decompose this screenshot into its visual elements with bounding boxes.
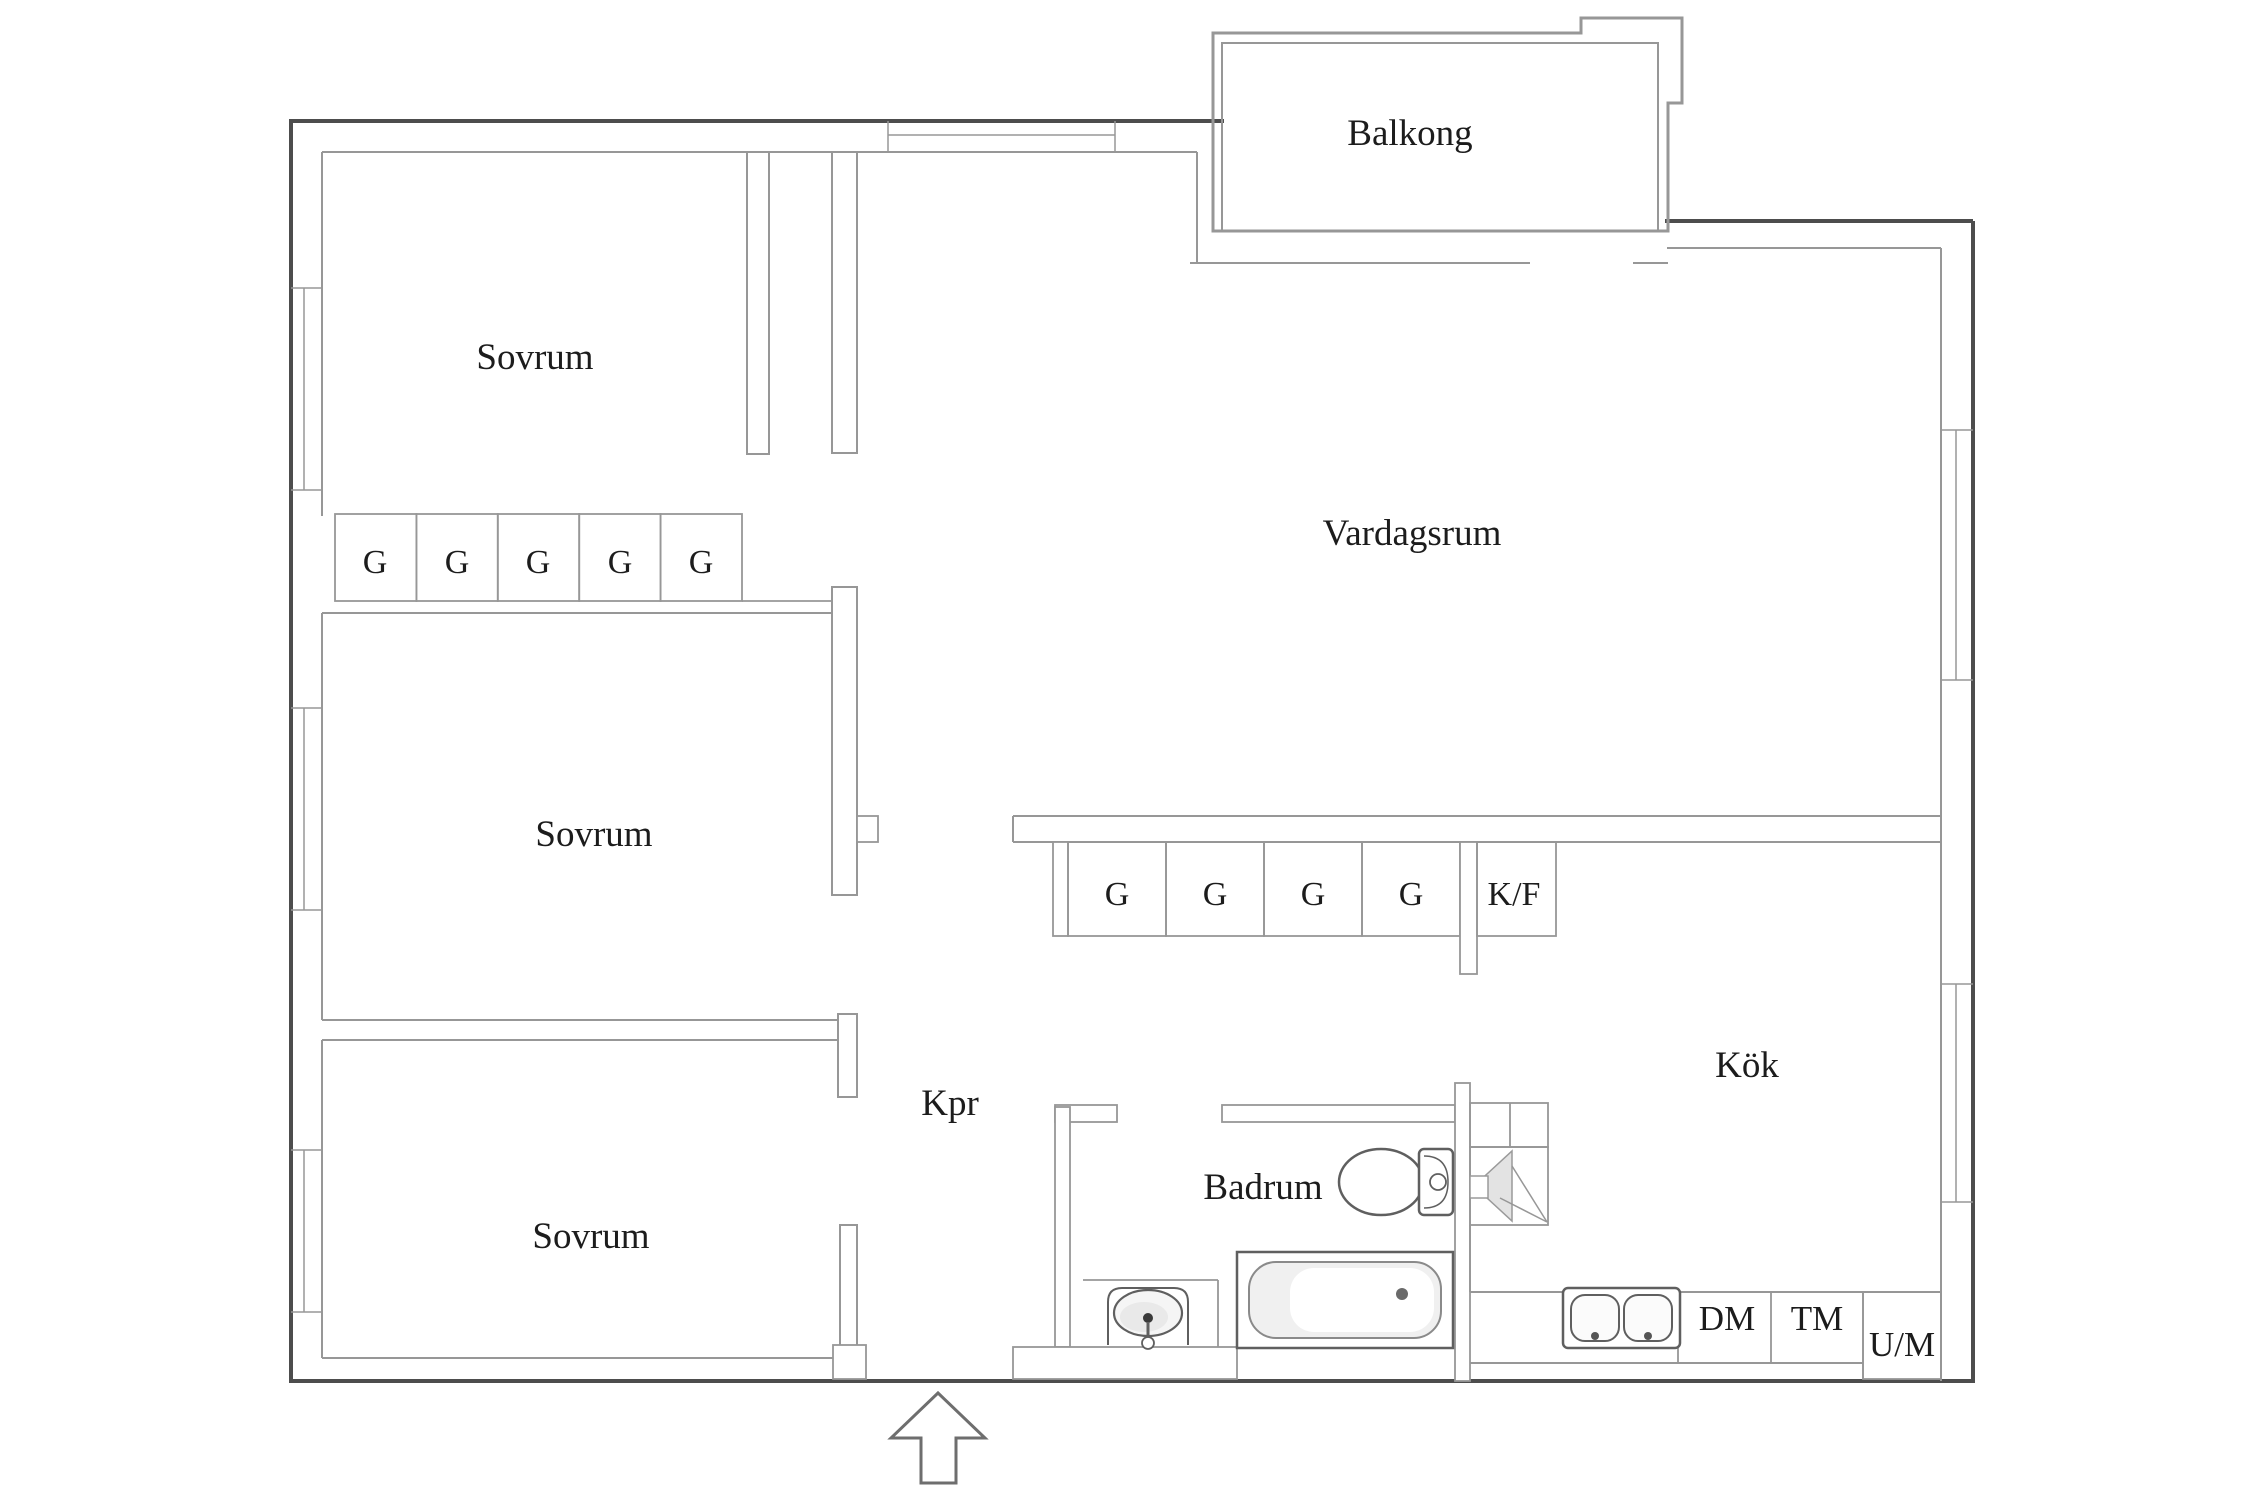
wardrobe-label: G <box>1399 876 1424 913</box>
washing-machine-label: TM <box>1791 1299 1844 1338</box>
bedroom1-window <box>291 288 322 490</box>
bedroom-2 <box>322 152 857 1020</box>
bedroom2-window <box>291 708 322 910</box>
balcony-label: Balkong <box>1347 113 1472 154</box>
livingroom-left-wall <box>832 152 857 453</box>
wardrobe-label: G <box>363 544 388 581</box>
wardrobe-label: G <box>445 544 470 581</box>
floor-plan: Balkong <box>0 0 2250 1500</box>
bedroom-3 <box>322 1014 866 1379</box>
kitchen-upper-cabinet <box>1470 1103 1548 1147</box>
livingroom-right-window <box>1941 430 1973 680</box>
bedroom3-wall-foot <box>833 1345 866 1379</box>
wardrobe-label: G <box>1105 876 1130 913</box>
bathroom-top-wall-right <box>1222 1105 1455 1122</box>
bathtub-drain <box>1396 1288 1408 1300</box>
bedroom3-right-wall-lower <box>840 1225 857 1347</box>
corridor-label: Kpr <box>921 1083 979 1124</box>
kitchen-sink-icon <box>1563 1288 1680 1348</box>
livingroom-label: Vardagsrum <box>1323 513 1502 554</box>
bedroom3-label: Sovrum <box>532 1216 649 1257</box>
left-wall <box>291 152 322 1358</box>
bedroom3-window <box>291 1150 322 1312</box>
hall-kitchen-wall-stub <box>1460 842 1477 974</box>
wardrobe-label: G <box>1203 876 1228 913</box>
bedroom1-label: Sovrum <box>476 337 593 378</box>
balcony <box>1190 18 1941 263</box>
right-wall <box>1941 248 1973 1381</box>
bedroom2-right-wall <box>832 587 857 895</box>
fridge-freezer-label: K/F <box>1488 876 1541 913</box>
bedroom2-label: Sovrum <box>535 814 652 855</box>
kitchen-appliance-labels: DM TM U/M <box>1699 1299 1935 1364</box>
bathroom-left-wall <box>1055 1107 1070 1347</box>
wardrobe-label: G <box>689 544 714 581</box>
bathroom-kitchen-wall <box>1455 1083 1470 1381</box>
washbasin-icon <box>1083 1280 1218 1349</box>
oven-microwave-label: U/M <box>1869 1325 1935 1364</box>
outer-walls <box>289 119 1975 1383</box>
bathroom-bottom-wall-band <box>1013 1347 1237 1379</box>
bathroom-label: Badrum <box>1203 1167 1322 1208</box>
kitchen-label: Kök <box>1715 1045 1779 1086</box>
toilet-icon <box>1339 1149 1453 1215</box>
wardrobe-label: G <box>608 544 633 581</box>
bathtub-icon <box>1237 1252 1453 1348</box>
dishwasher-label: DM <box>1699 1299 1755 1338</box>
living-room <box>857 816 1941 842</box>
entrance-arrow-icon <box>891 1393 985 1483</box>
wardrobe-label: G <box>526 544 551 581</box>
hall-opening-stub <box>857 816 878 842</box>
bedroom3-right-wall-upper <box>838 1014 857 1097</box>
wardrobe-label: G <box>1301 876 1326 913</box>
kitchen-right-window <box>1941 984 1973 1202</box>
bedroom1-right-wall <box>747 152 769 454</box>
